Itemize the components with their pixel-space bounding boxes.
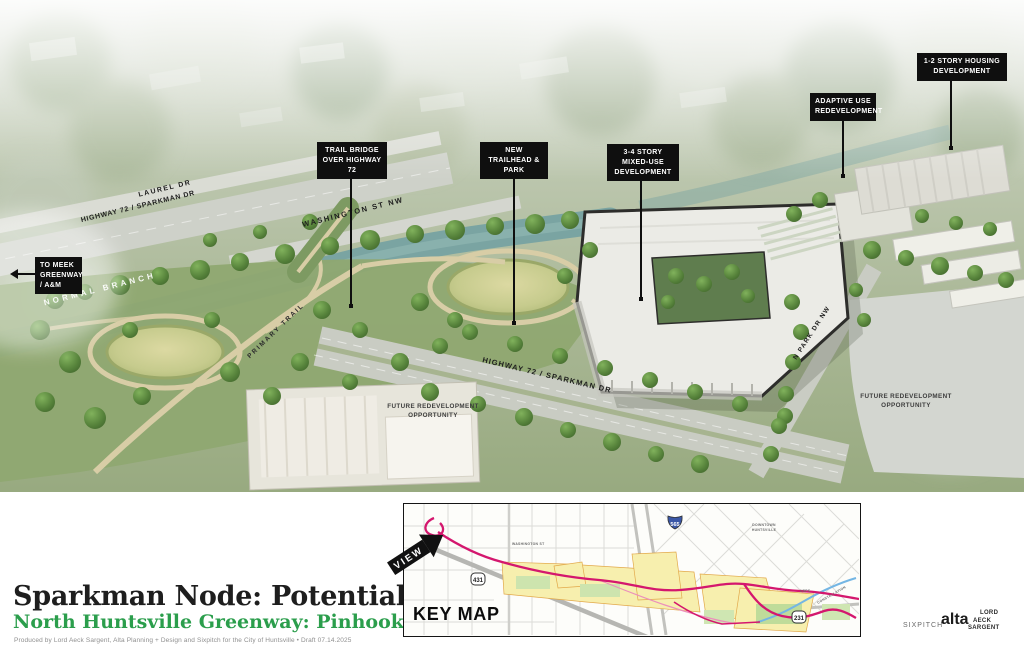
- callout-to-meek: TO MEEK GREENWAY / A&M: [35, 257, 82, 294]
- keymap-heading: KEY MAP: [413, 604, 500, 625]
- logo-las-line3: SARGENT: [968, 625, 999, 633]
- callout-trail-bridge: TRAIL BRIDGE OVER HIGHWAY 72: [317, 142, 387, 179]
- callout-adaptive-use: ADAPTIVE USE REDEVELOPMENT: [810, 93, 876, 121]
- leader-new-trailhead: [513, 163, 515, 322]
- logo-las-line2: AECK: [973, 618, 999, 626]
- keymap-shield-431: 431: [471, 573, 485, 585]
- leader-adaptive-use: [842, 112, 844, 175]
- logo-alta: alta: [941, 611, 969, 629]
- view-arrow-icon: VIEW: [378, 521, 454, 583]
- svg-text:HUNTSVILLE: HUNTSVILLE: [752, 528, 777, 532]
- future-warehouse-center: [246, 382, 479, 490]
- logo-sixpitch: SIXPITCH: [903, 622, 943, 629]
- leader-mixed-use: [640, 165, 642, 298]
- leader-housing: [950, 73, 952, 147]
- keymap-shield-231: 231: [792, 611, 806, 623]
- leader-trail-bridge: [350, 162, 352, 305]
- logo-las-line1: LORD: [980, 610, 999, 618]
- aerial-rendering: [0, 0, 1024, 492]
- logo-lord-aeck-sargent: LORD AECK SARGENT: [968, 610, 999, 633]
- callout-housing: 1-2 STORY HOUSING DEVELOPMENT: [917, 53, 1007, 81]
- area-label-future-center: FUTURE REDEVELOPMENT OPPORTUNITY: [378, 402, 488, 420]
- page-title: Sparkman Node: Potential: [13, 581, 406, 612]
- svg-text:WASHINGTON ST: WASHINGTON ST: [512, 542, 545, 546]
- keymap-shield-565: 565: [668, 516, 682, 529]
- svg-text:565: 565: [670, 522, 679, 528]
- callout-new-trailhead: NEW TRAILHEAD & PARK: [480, 142, 548, 179]
- future-lot-right: [849, 283, 1024, 478]
- credit-line: Produced by Lord Aeck Sargent, Alta Plan…: [14, 637, 352, 644]
- svg-text:USPS: USPS: [800, 589, 811, 593]
- plan-board: LAUREL DR HIGHWAY 72 / SPARKMAN DR WASHI…: [0, 0, 1024, 662]
- svg-text:DOWNTOWN: DOWNTOWN: [752, 523, 776, 527]
- svg-text:431: 431: [473, 578, 484, 584]
- callout-mixed-use: 3-4 STORY MIXED-USE DEVELOPMENT: [607, 144, 679, 181]
- to-meek-arrow-icon: [10, 268, 36, 280]
- area-label-future-right: FUTURE REDEVELOPMENT OPPORTUNITY: [851, 392, 961, 410]
- svg-text:231: 231: [794, 616, 805, 622]
